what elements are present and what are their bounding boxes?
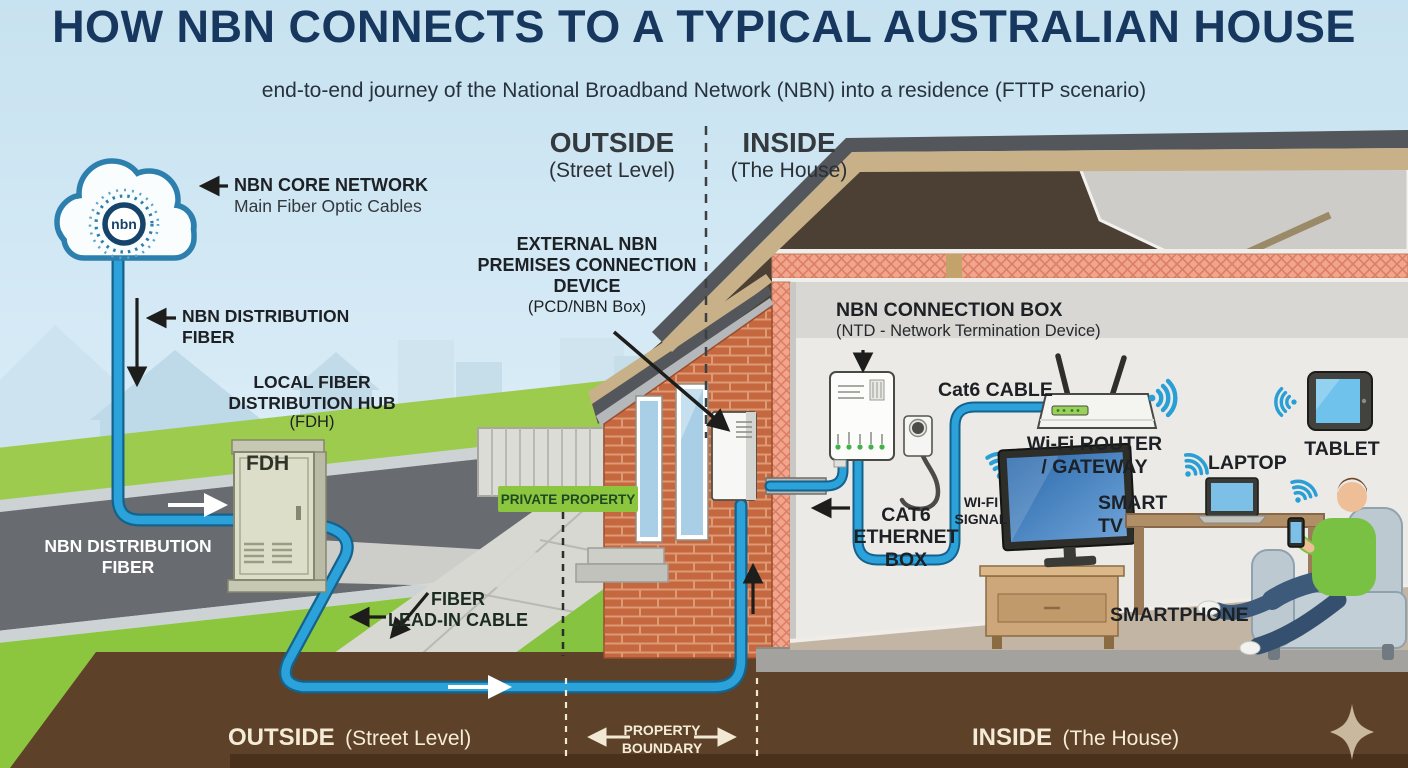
nbn-cloud-icon xyxy=(57,161,194,258)
page-title: HOW NBN CONNECTS TO A TYPICAL AUSTRALIAN… xyxy=(0,0,1408,53)
nbn-infographic: HOW NBN CONNECTS TO A TYPICAL AUSTRALIAN… xyxy=(0,0,1408,768)
outside-title: OUTSIDE xyxy=(512,126,712,159)
tablet-label: TABLET xyxy=(1302,438,1382,461)
pcd-device xyxy=(712,412,756,500)
ntd-label: NBN CONNECTION BOX (NTD - Network Termin… xyxy=(836,299,1101,341)
footer-inside-label: INSIDE (The House) xyxy=(972,724,1179,752)
lead-in-label: FIBER LEAD-IN CABLE xyxy=(368,589,548,631)
fdh-box-label: FDH xyxy=(246,452,289,477)
tv-cabinet xyxy=(980,566,1124,649)
nbn-logo-label: nbn xyxy=(106,216,142,233)
core-network-label: NBN CORE NETWORK Main Fiber Optic Cables xyxy=(234,175,428,217)
private-property-sign: PRIVATE PROPERTY xyxy=(498,486,638,512)
router-label: Wi-Fi ROUTER / GATEWAY xyxy=(1012,433,1177,479)
wifi-signal-label: WI-FI SIGNAL xyxy=(942,494,1020,527)
ntd-device xyxy=(830,372,894,467)
cat6-cable-label: Cat6 CABLE xyxy=(938,379,1053,402)
smartphone-label: SMARTPHONE xyxy=(1110,604,1249,627)
pcd-label: EXTERNAL NBN PREMISES CONNECTION DEVICE … xyxy=(462,234,712,317)
zone-header-outside: OUTSIDE (Street Level) xyxy=(512,126,712,184)
zone-header-inside: INSIDE (The House) xyxy=(709,126,869,184)
tablet-icon xyxy=(1308,372,1372,430)
page-subtitle: end-to-end journey of the National Broad… xyxy=(0,79,1408,104)
footer-outside-label: OUTSIDE (Street Level) xyxy=(228,724,471,752)
road-fiber-label: NBN DISTRIBUTION FIBER xyxy=(28,536,228,577)
inside-title: INSIDE xyxy=(709,126,869,159)
fdh-label: LOCAL FIBER DISTRIBUTION HUB (FDH) xyxy=(212,372,412,433)
laptop-label: LAPTOP xyxy=(1208,452,1287,475)
footer-boundary-label: PROPERTY BOUNDARY xyxy=(608,722,716,757)
inside-subtitle: (The House) xyxy=(709,159,869,184)
smart-tv-label: SMART TV xyxy=(1098,492,1167,538)
laptop-icon xyxy=(1198,478,1266,523)
distribution-fiber-label: NBN DISTRIBUTION FIBER xyxy=(182,306,349,347)
outside-subtitle: (Street Level) xyxy=(512,159,712,184)
